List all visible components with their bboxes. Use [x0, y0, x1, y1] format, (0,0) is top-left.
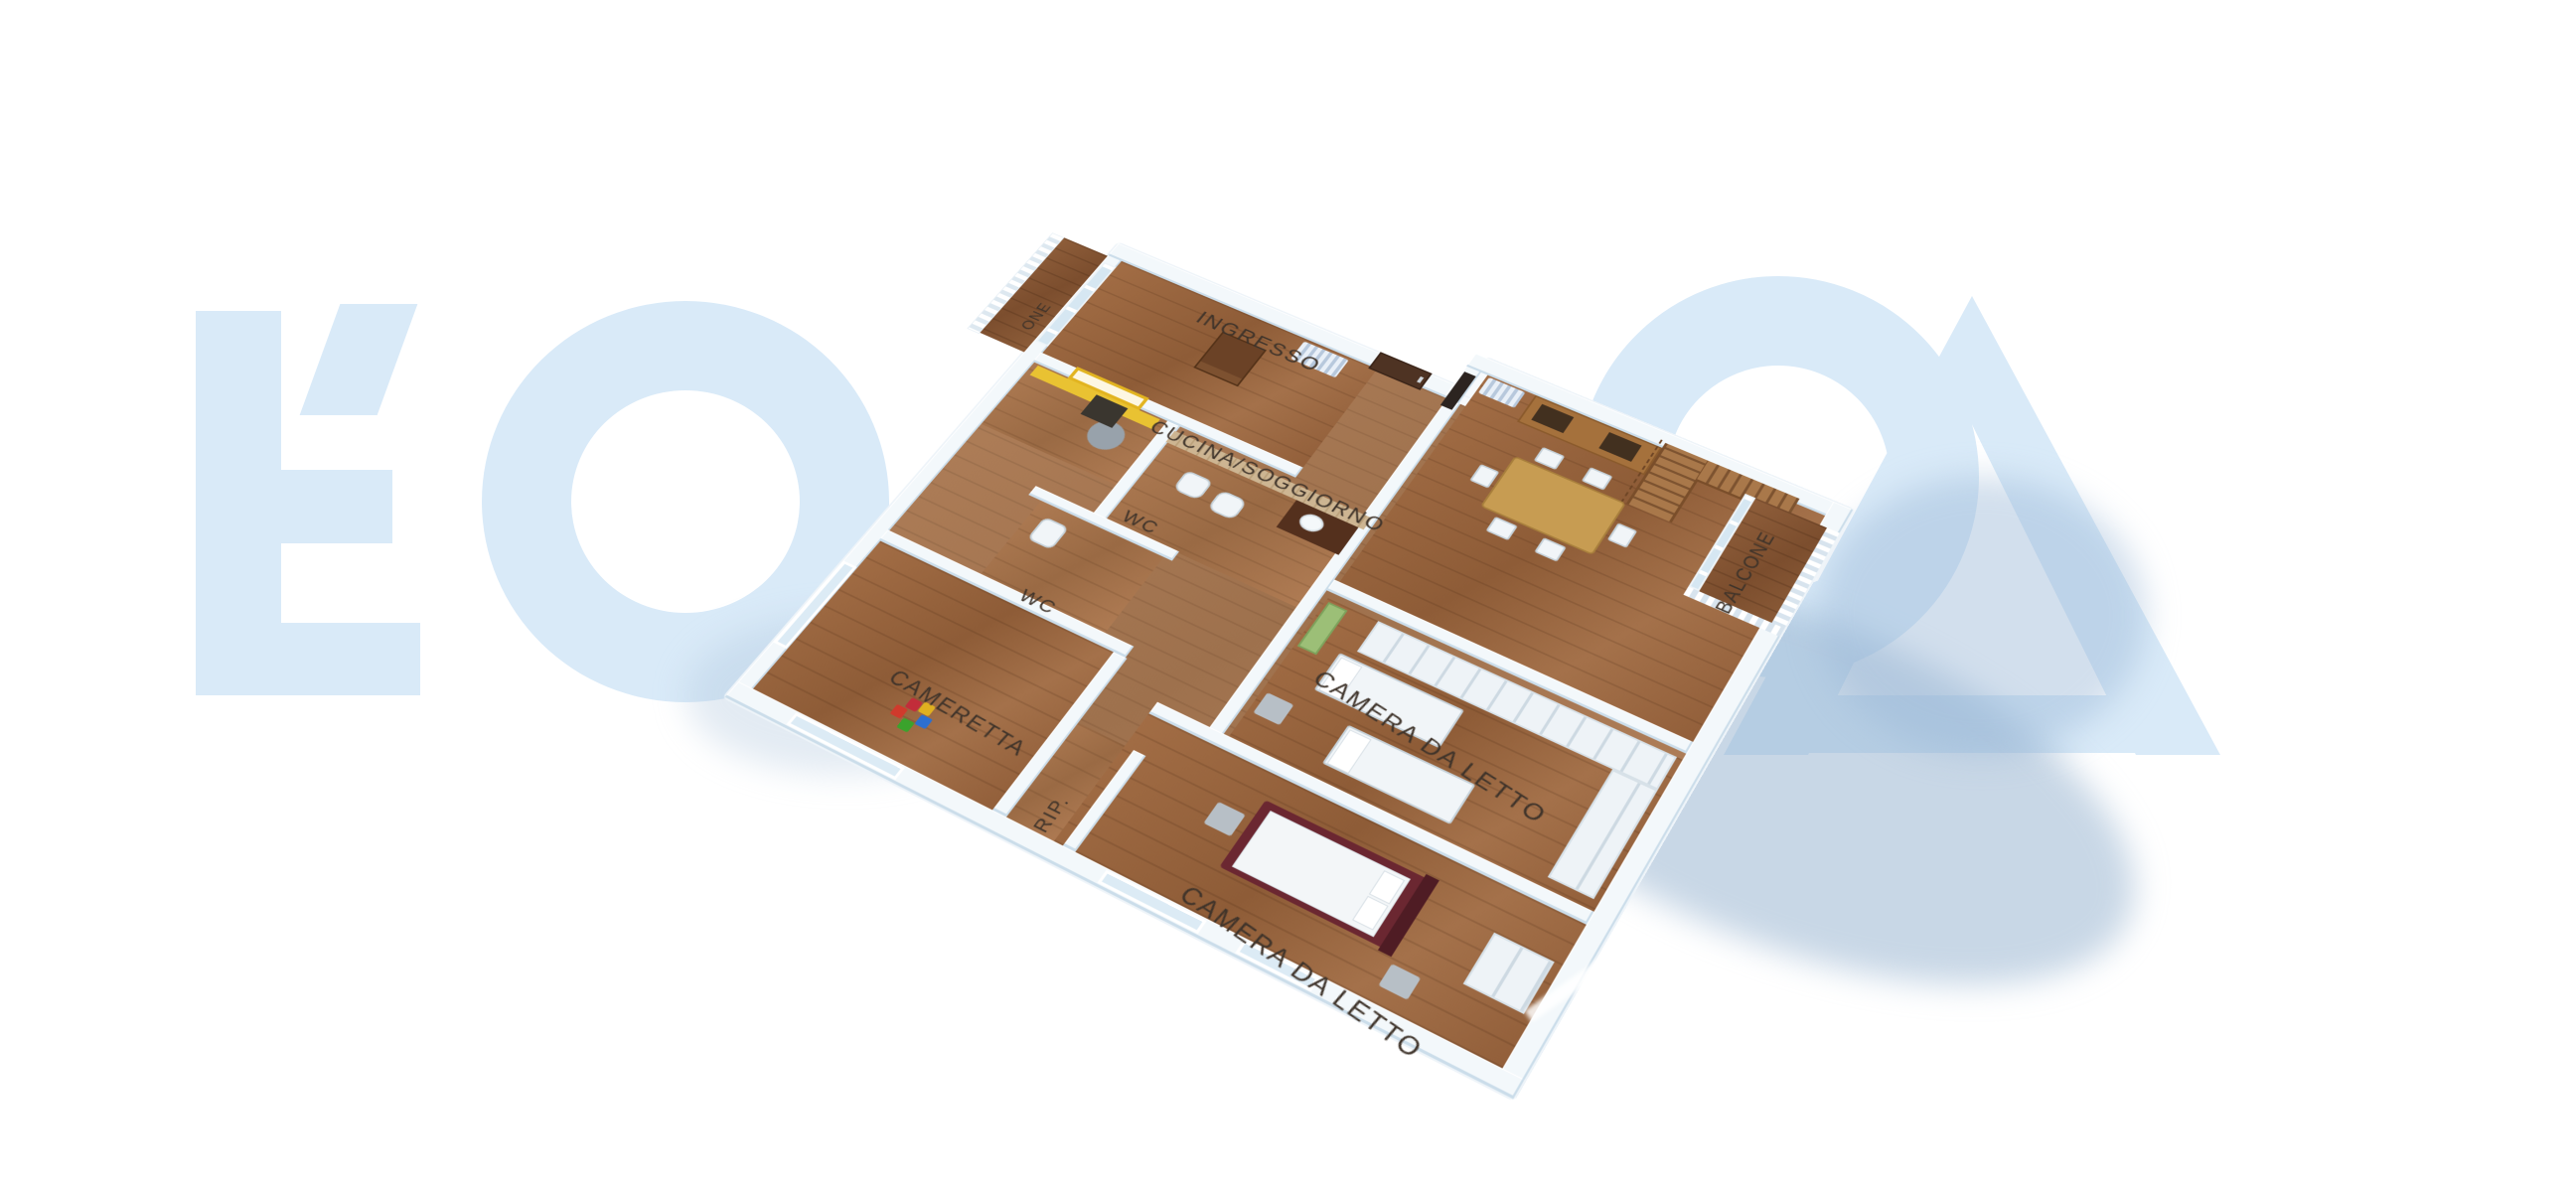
watermark-letter-l-apostrophe: [300, 304, 418, 415]
watermark-letter-l-stem: [196, 311, 281, 695]
watermark-letter-l-bottom-arm: [281, 623, 420, 695]
reflection-streak-2: [1574, 1012, 1656, 1076]
house-shadow-balcony: [1818, 477, 2146, 755]
reflection-streak-3: [1621, 1066, 1704, 1129]
floor-plan-scene: ONE WC WC CAMERETTA RIP.: [0, 0, 2576, 1191]
watermark-letter-l-mid-arm: [281, 470, 392, 543]
